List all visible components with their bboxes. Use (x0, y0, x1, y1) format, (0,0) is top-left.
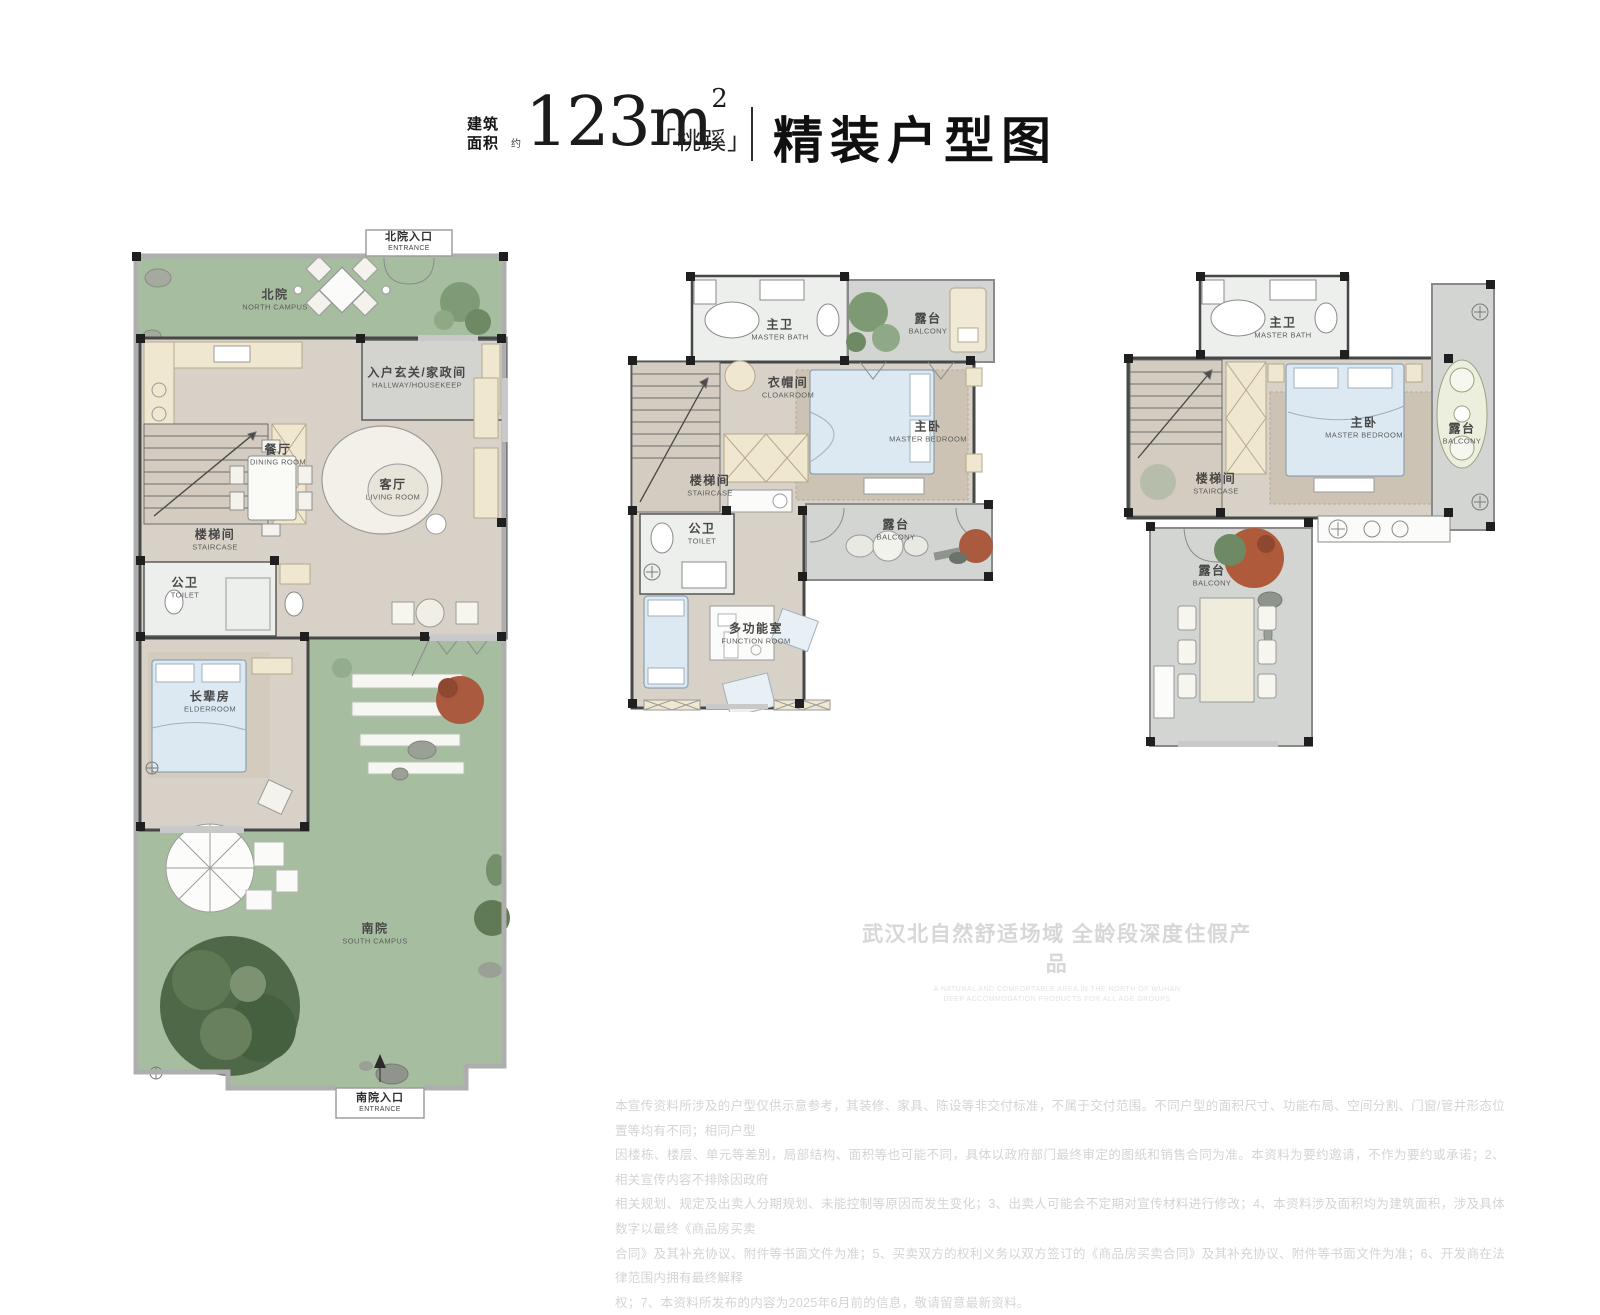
big-tree (160, 936, 300, 1076)
patio-shrub (436, 676, 484, 724)
room-label-cloakroom: 衣帽间 CLOAKROOM (762, 376, 814, 399)
room-label-master-bath-2: 主卫 MASTER BATH (751, 318, 808, 341)
floor-plan-third: 主卫 MASTER BATH 主卧 MASTER BEDROOM 露台 BALC… (1118, 262, 1495, 750)
room-label-master-bath-3: 主卫 MASTER BATH (1254, 316, 1311, 339)
balcony-mid-2 (806, 504, 993, 580)
room-label-balcony-mid-2: 露台 BALCONY (877, 518, 916, 541)
room-label-hallway: 入户玄关/家政间 HALLWAY/HOUSEKEEP (367, 366, 466, 389)
room-label-staircase-1: 楼梯间 STAIRCASE (192, 528, 238, 551)
side-cabinet (474, 448, 498, 518)
room-label-master-bedroom-3: 主卧 MASTER BEDROOM (1325, 416, 1403, 439)
room-label-living: 客厅 LIVING ROOM (366, 478, 420, 501)
kitchenette-3 (1318, 516, 1450, 542)
room-label-dining: 餐厅 DINING ROOM (250, 443, 306, 466)
room-label-master-bedroom-2: 主卧 MASTER BEDROOM (889, 420, 967, 443)
wardrobe-3 (1226, 362, 1266, 474)
area-superscript: 2 (711, 84, 728, 114)
room-label-balcony-top-2: 露台 BALCONY (909, 312, 948, 335)
area-label: 建筑 面积 (467, 115, 499, 153)
watermark: 武汉北自然舒适场域 全龄段深度住假产品 A NATURAL AND COMFOR… (852, 918, 1262, 1005)
watermark-slogan: 武汉北自然舒适场域 全龄段深度住假产品 (852, 918, 1262, 978)
disclaimer-line: 因楼栋、楼层、单元等差别，局部结构、面积等也可能不同，具体以政府部门最终审定的图… (615, 1143, 1505, 1192)
disclaimer-line: 本宣传资料所涉及的户型仅供示意参考，其装修、家具、陈设等非交付标准，不属于交付范… (615, 1094, 1505, 1143)
product-name: 「桃蹊」 (652, 121, 752, 156)
room-label-toilet-1: 公卫 TOILET (171, 576, 200, 599)
disclaimer-text: 本宣传资料所涉及的户型仅供示意参考，其装修、家具、陈设等非交付标准，不属于交付范… (615, 1094, 1505, 1315)
room-label-north-yard: 北院 NORTH CAMPUS (242, 288, 308, 311)
room-label-south-yard: 南院 SOUTH CAMPUS (342, 922, 407, 945)
tv-cabinet (474, 378, 498, 438)
balcony-right-3 (1432, 284, 1494, 530)
page-title: 建筑 面积 约 123m2 「桃蹊」 精装户型图 (455, 93, 1175, 183)
main-title: 精装户型图 (773, 101, 1058, 173)
tea-table-set (392, 599, 478, 627)
disclaimer-line: 相关规划、规定及出卖人分期规划、未能控制等原因而发生变化；3、出卖人可能会不定期… (615, 1192, 1505, 1241)
title-divider (751, 107, 753, 161)
north-entrance-label: 北院入口 ENTRANCE (385, 231, 433, 253)
area-number: 123 (525, 83, 649, 162)
outdoor-dining-table (1200, 598, 1254, 702)
area-label-line1: 建筑 (467, 115, 499, 134)
room-label-balcony-right-3: 露台 BALCONY (1443, 422, 1482, 445)
room-label-balcony-bottom-3: 露台 BALCONY (1193, 564, 1232, 587)
room-label-staircase-3: 楼梯间 STAIRCASE (1193, 472, 1239, 495)
disclaimer-line: 权；7、本资料所发布的内容为2025年6月前的信息，敬请留意最新资料。 (615, 1291, 1505, 1315)
area-label-line2: 面积 (467, 134, 499, 153)
balcony-bottom-3 (1150, 528, 1312, 747)
room-label-staircase-2: 楼梯间 STAIRCASE (687, 474, 733, 497)
approx-mark: 约 (511, 135, 521, 150)
south-entrance-label: 南院入口 ENTRANCE (356, 1092, 404, 1114)
floor-plan-second: 主卫 MASTER BATH 露台 BALCONY 衣帽间 CLOAKROOM … (628, 262, 995, 712)
watermark-english: A NATURAL AND COMFORTABLE AREA IN THE NO… (852, 985, 1262, 1005)
floor-plan-ground: 北院入口 ENTRANCE 北院 NORTH CAMPUS 入户玄关/家政间 H… (130, 228, 510, 1138)
room-label-function-room: 多功能室 FUNCTION ROOM (721, 622, 790, 645)
staircase-plant (1140, 464, 1176, 500)
patio-plant (332, 658, 352, 678)
room-label-toilet-2: 公卫 TOILET (688, 522, 717, 545)
room-label-elder: 长辈房 ELDERROOM (184, 690, 236, 713)
toilet-room-1 (144, 562, 276, 636)
